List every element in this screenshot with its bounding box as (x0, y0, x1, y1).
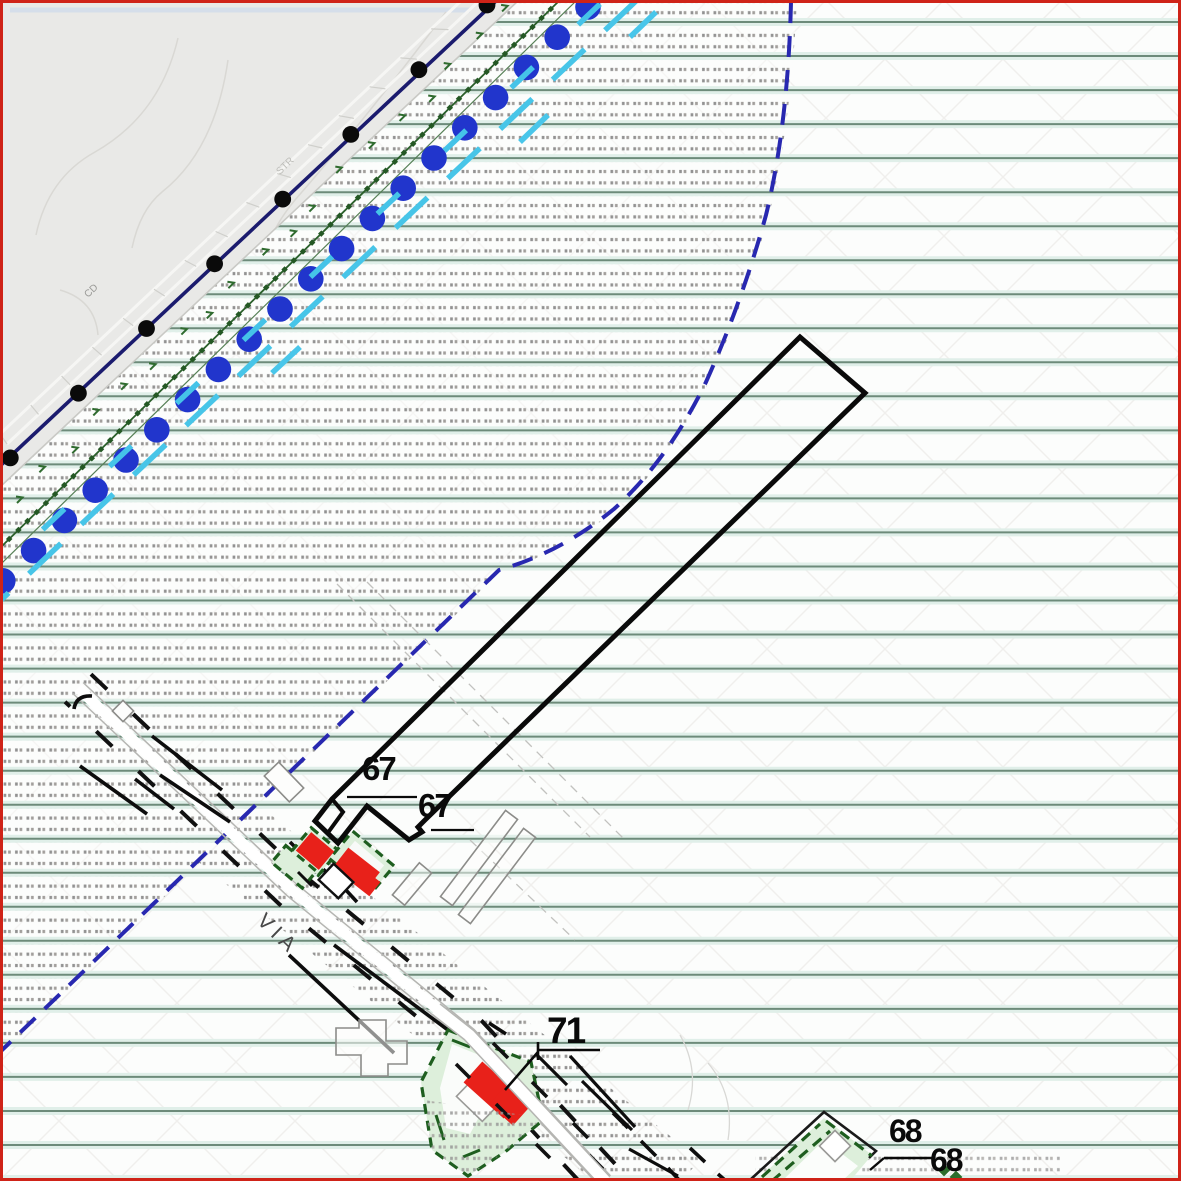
svg-text:67: 67 (362, 750, 395, 787)
svg-text:68: 68 (889, 1113, 922, 1149)
svg-text:67: 67 (418, 787, 451, 824)
svg-text:68: 68 (930, 1142, 963, 1178)
svg-text:71: 71 (547, 1010, 586, 1051)
